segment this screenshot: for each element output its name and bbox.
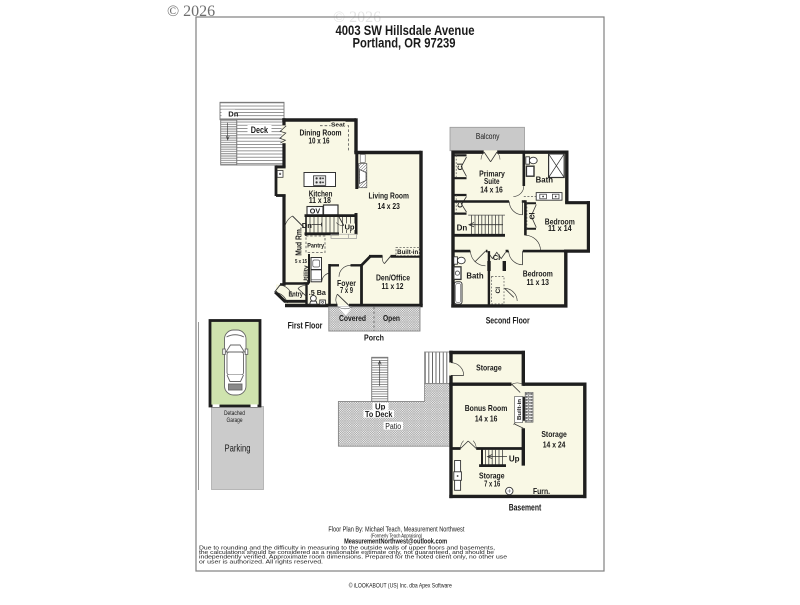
svg-text:Porch: Porch [364,333,384,343]
svg-text:Furn.: Furn. [533,487,550,496]
svg-text:Cl: Cl [493,253,501,262]
svg-text:Parking: Parking [225,443,251,455]
svg-text:Dn: Dn [228,109,238,118]
svg-text:7 x 16: 7 x 16 [484,480,501,489]
svg-text:Built-in: Built-in [517,399,523,420]
svg-text:Cl: Cl [457,163,464,170]
svg-text:Storage: Storage [476,362,502,372]
svg-text:14 x 16: 14 x 16 [475,415,498,424]
svg-text:Bonus Room: Bonus Room [465,403,508,413]
svg-text:14 x 24: 14 x 24 [543,441,566,450]
svg-text:or user is authorized. All rig: or user is authorized. All rights reserv… [199,559,324,565]
svg-text:Floor Plan By: Michael Teach,: Floor Plan By: Michael Teach, Measuremen… [328,525,465,534]
svg-text:Up: Up [509,455,520,464]
svg-text:MeasurementNorthwest@outlook.c: MeasurementNorthwest@outlook.com [344,537,447,546]
svg-text:Portland, OR 97239: Portland, OR 97239 [353,36,456,51]
svg-text:Cl: Cl [530,212,537,219]
svg-text:Utility: Utility [303,265,310,284]
svg-text:Open: Open [383,314,400,323]
svg-text:Dn: Dn [457,224,468,233]
svg-text:To Deck: To Deck [365,410,393,419]
svg-text:14 x 23: 14 x 23 [377,202,400,211]
svg-text:7 x 9: 7 x 9 [340,286,353,295]
svg-text:11 x 18: 11 x 18 [309,196,331,205]
svg-text:Garage: Garage [227,417,243,424]
svg-text:Built-in: Built-in [397,250,418,256]
svg-text:11 x 12: 11 x 12 [382,282,404,291]
svg-text:Entry: Entry [289,289,304,298]
svg-text:14 x 16: 14 x 16 [480,185,503,194]
svg-text:11 x 14: 11 x 14 [548,224,572,233]
svg-text:Pantry: Pantry [307,243,324,250]
svg-text:First Floor: First Floor [288,321,323,331]
svg-text:© iLOOKABOUT (US) Inc. dba Ape: © iLOOKABOUT (US) Inc. dba Apex Software [349,581,452,589]
svg-text:Storage: Storage [541,429,567,439]
svg-text:Cl: Cl [495,287,502,294]
svg-text:10 x 16: 10 x 16 [309,137,330,146]
svg-text:Bath: Bath [536,176,554,185]
svg-text:11 x 13: 11 x 13 [526,278,549,287]
svg-text:5 x 15: 5 x 15 [295,259,307,265]
svg-text:Covered: Covered [339,314,366,323]
svg-text:Balcony: Balcony [476,132,500,141]
svg-text:Living Room: Living Room [368,191,409,201]
svg-text:Second Floor: Second Floor [486,316,530,326]
svg-text:Mud Rm.: Mud Rm. [295,227,304,256]
svg-text:Up: Up [344,223,354,232]
svg-text:Patio: Patio [385,422,401,431]
svg-text:Basement: Basement [509,503,542,513]
svg-text:Deck: Deck [251,125,269,136]
svg-text:Bath: Bath [466,271,484,280]
